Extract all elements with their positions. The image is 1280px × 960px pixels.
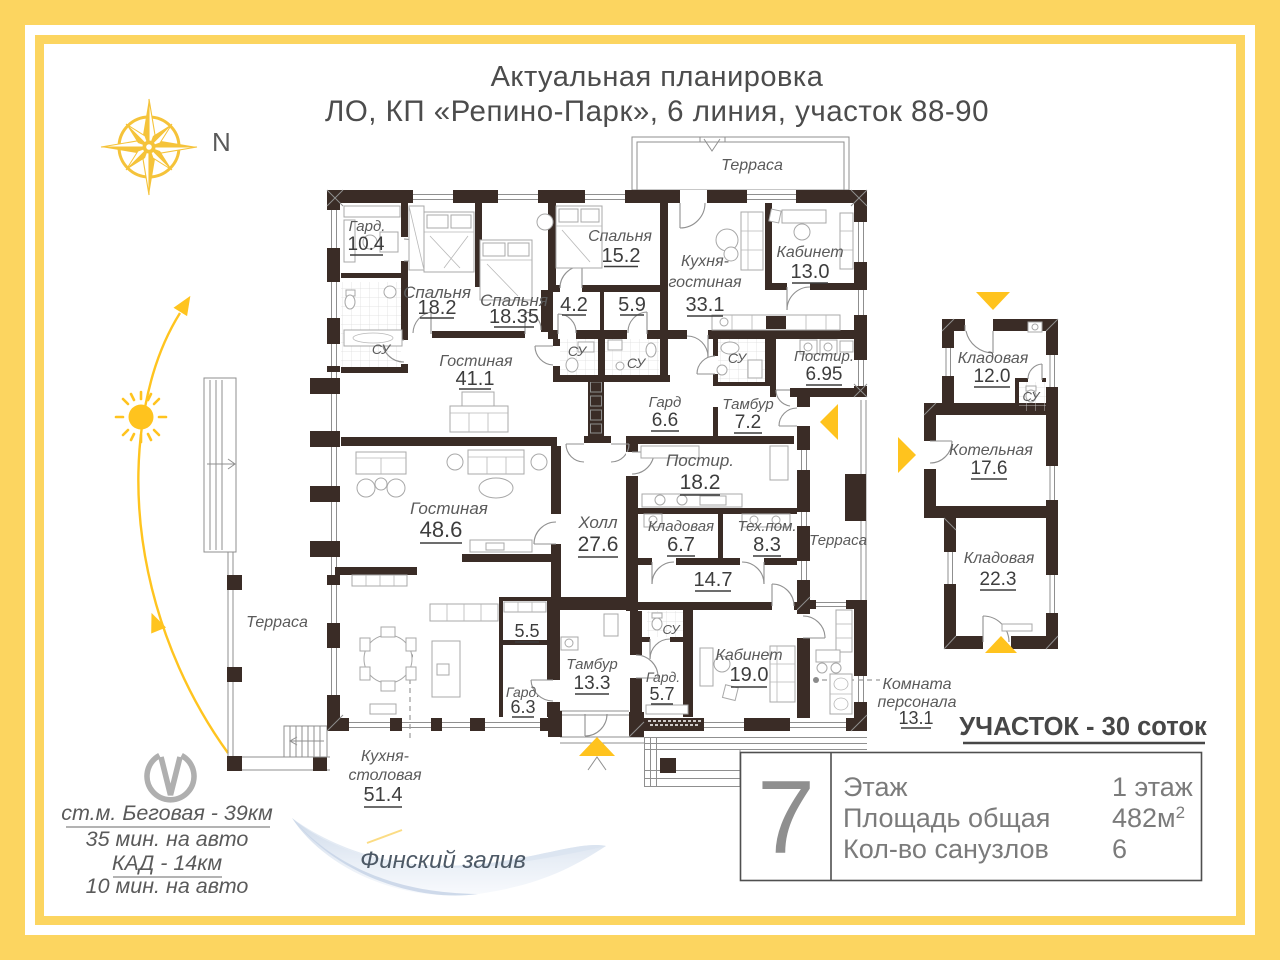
svg-text:6.7: 6.7 (667, 534, 695, 556)
svg-text:17.6: 17.6 (971, 458, 1008, 479)
svg-text:Кабинет: Кабинет (776, 244, 843, 261)
svg-text:Котельная: Котельная (949, 442, 1033, 459)
svg-text:Гард: Гард (649, 394, 682, 411)
svg-text:Гард.: Гард. (646, 669, 680, 685)
svg-text:48.6: 48.6 (420, 517, 463, 542)
svg-text:Кладовая: Кладовая (964, 550, 1035, 567)
svg-text:СУ: СУ (728, 350, 748, 366)
svg-text:Кладовая: Кладовая (958, 350, 1029, 367)
svg-text:22.3: 22.3 (980, 569, 1017, 590)
svg-text:столовая: столовая (348, 767, 422, 784)
svg-text:19.0: 19.0 (730, 664, 769, 686)
svg-text:Кухня-: Кухня- (681, 253, 729, 270)
svg-text:18.2: 18.2 (680, 471, 721, 494)
svg-text:14.7: 14.7 (694, 569, 733, 591)
svg-text:Тамбур: Тамбур (722, 396, 773, 413)
svg-text:33.1: 33.1 (686, 294, 725, 316)
svg-text:Тех.пом.: Тех.пом. (737, 518, 796, 535)
svg-text:Терраса: Терраса (721, 157, 783, 174)
svg-text:5.5: 5.5 (514, 621, 539, 641)
svg-text:УЧАСТОК - 30 соток: УЧАСТОК - 30 соток (959, 713, 1207, 741)
svg-text:ст.м. Беговая - 39км: ст.м. Беговая - 39км (61, 801, 273, 825)
svg-text:Тамбур: Тамбур (566, 656, 617, 673)
svg-text:Комната: Комната (882, 676, 951, 693)
svg-text:18.35: 18.35 (489, 306, 539, 328)
svg-text:13.3: 13.3 (574, 673, 611, 694)
svg-text:51.4: 51.4 (364, 784, 403, 806)
svg-text:13.1: 13.1 (898, 708, 933, 728)
svg-text:12.0: 12.0 (974, 366, 1011, 387)
svg-text:13.0: 13.0 (791, 261, 830, 283)
svg-text:Терраса: Терраса (246, 614, 308, 631)
svg-text:15.2: 15.2 (602, 245, 641, 267)
svg-text:Гард.: Гард. (349, 218, 386, 235)
svg-text:18.2: 18.2 (418, 297, 457, 319)
svg-text:6.3: 6.3 (510, 697, 535, 717)
svg-text:7.2: 7.2 (735, 412, 761, 433)
svg-text:5.9: 5.9 (618, 294, 646, 316)
svg-text:482м2: 482м2 (1112, 803, 1185, 833)
svg-text:СУ: СУ (663, 622, 682, 637)
svg-text:Постир.: Постир. (666, 451, 734, 470)
svg-text:6.6: 6.6 (652, 410, 678, 431)
svg-text:Кабинет: Кабинет (715, 647, 782, 664)
svg-text:6.95: 6.95 (806, 364, 843, 385)
svg-text:Площадь общая: Площадь общая (843, 803, 1050, 833)
svg-text:4.2: 4.2 (560, 294, 588, 316)
svg-text:10.4: 10.4 (348, 234, 385, 255)
svg-text:Этаж: Этаж (843, 772, 908, 802)
svg-text:41.1: 41.1 (456, 368, 495, 390)
svg-text:Кол-во санузлов: Кол-во санузлов (843, 834, 1049, 864)
svg-text:Финский залив: Финский залив (360, 847, 526, 874)
svg-text:Кухня-: Кухня- (361, 748, 409, 765)
svg-text:Терраса: Терраса (809, 532, 867, 549)
svg-text:КАД - 14км: КАД - 14км (112, 851, 223, 875)
svg-text:1 этаж: 1 этаж (1112, 772, 1193, 802)
svg-text:5.7: 5.7 (649, 684, 674, 704)
svg-text:27.6: 27.6 (578, 533, 619, 556)
svg-text:Постир.: Постир. (794, 348, 854, 365)
svg-text:Гостиная: Гостиная (410, 499, 488, 518)
svg-text:7: 7 (757, 760, 815, 876)
svg-text:Спальня: Спальня (588, 228, 652, 245)
svg-text:СУ: СУ (627, 355, 647, 371)
svg-text:Кладовая: Кладовая (648, 518, 714, 535)
svg-text:ЛО, КП «Репино-Парк», 6 линия,: ЛО, КП «Репино-Парк», 6 линия, участок 8… (325, 95, 989, 128)
svg-text:СУ: СУ (1023, 389, 1042, 404)
svg-text:10 мин. на авто: 10 мин. на авто (86, 874, 249, 898)
svg-text:Актуальная планировка: Актуальная планировка (491, 61, 824, 93)
svg-text:Холл: Холл (577, 513, 618, 532)
svg-text:8.3: 8.3 (753, 534, 781, 556)
svg-text:гостиная: гостиная (668, 274, 742, 291)
svg-text:СУ: СУ (372, 341, 392, 357)
svg-text:6: 6 (1112, 834, 1127, 864)
svg-text:N: N (212, 127, 231, 157)
svg-text:СУ: СУ (568, 343, 588, 359)
svg-text:35 мин. на авто: 35 мин. на авто (86, 827, 249, 851)
